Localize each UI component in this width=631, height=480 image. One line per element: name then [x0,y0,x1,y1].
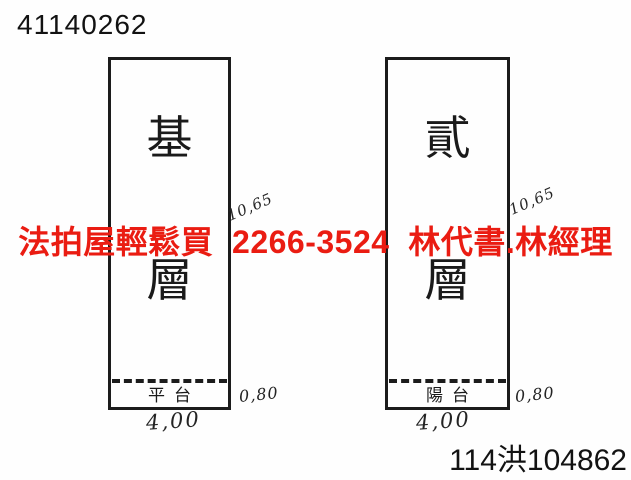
dimension-width-left: 4,00 [145,407,201,435]
case-number: 114洪104862 [449,435,627,479]
balcony-label: 陽台 [388,386,507,406]
platform-dashed-line [112,379,227,383]
red-watermark-text: 法拍屋輕鬆買 2266-3524 林代書.林經理 [0,217,631,263]
floor-char-top: 貳 [388,116,507,162]
dimension-width-right: 4,00 [415,407,471,435]
floor-char-bottom: 層 [388,258,507,304]
floor-char-bottom: 層 [111,258,228,304]
document-number: 41140262 [17,9,148,41]
dimension-height-right: 10,65 [506,183,557,218]
floor-char-top: 基 [111,116,228,162]
balcony-dashed-line [389,379,506,383]
dimension-balcony-height-right: 0,80 [514,383,555,406]
platform-label: 平台 [111,386,228,406]
scanned-floorplan-page: 41140262 基 層 平台 貳 層 陽台 10,65 10,65 0,80 … [0,0,631,480]
dimension-platform-height-left: 0,80 [238,383,279,406]
